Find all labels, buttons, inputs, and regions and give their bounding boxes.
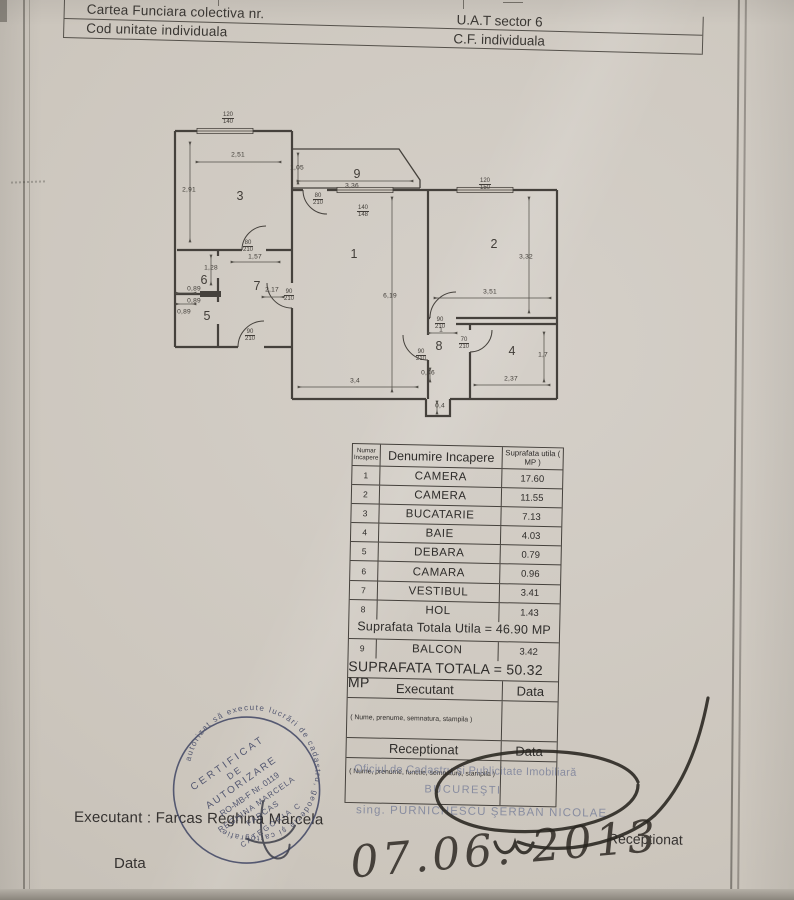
opening-size-label: 140148 (357, 205, 369, 218)
dimension-label: 1,57 (248, 254, 262, 261)
table-cell: 1.43 (499, 603, 559, 623)
table-cell: 7 (350, 581, 378, 600)
table-body: 1CAMERA17.602CAMERA11.553BUCATARIE7.134B… (349, 466, 562, 623)
opening-height: 140 (222, 119, 234, 125)
room-number: 6 (201, 273, 208, 287)
opening-width: 90 (416, 349, 426, 356)
room-number: 5 (204, 309, 211, 323)
column-header: Numar Incapere (353, 444, 381, 466)
opening-height: 210 (435, 324, 445, 330)
opening-size-label: 90210 (284, 289, 294, 302)
table-cell: 17.60 (502, 469, 562, 488)
dimension-label: 0,89 (177, 309, 191, 316)
dimension-label: 2,17 (265, 287, 279, 294)
table-cell: CAMERA (380, 486, 502, 507)
table-cell: 4 (351, 523, 379, 542)
table-cell: DEBARA (379, 543, 501, 564)
scanned-document-page: Cartea Funciara colectiva nr. U.A.T sect… (0, 0, 794, 900)
table-cell: CAMERA (380, 467, 502, 488)
opening-width: 90 (284, 289, 294, 296)
stamp-center-text: CERTIFICAT DE AUTORIZARE RO-MB-F Nr. 011… (187, 733, 311, 855)
table-cell: 3.42 (498, 642, 558, 662)
table-cell: 1 (352, 466, 380, 485)
opening-width: 90 (245, 329, 255, 336)
column-header: Denumire Incapere (381, 445, 503, 469)
opening-height: 210 (416, 356, 426, 362)
table-cell: BALCON (376, 639, 498, 661)
table-cell: 0.96 (500, 565, 560, 584)
opening-height: 210 (313, 200, 323, 206)
opening-size-label: 80210 (243, 240, 253, 253)
room-number: 8 (436, 339, 443, 353)
opening-height: 210 (284, 296, 294, 302)
opening-height: 210 (245, 336, 255, 342)
table-cell: 7.13 (501, 507, 561, 526)
opening-size-label: 70210 (459, 337, 469, 350)
table-cell: BAIE (379, 524, 501, 545)
opening-width: 120 (479, 178, 491, 185)
dimension-label: 6,19 (383, 293, 397, 300)
table-cell: 3.41 (500, 584, 560, 603)
table-cell: BUCATARIE (379, 505, 501, 526)
table-cell: HOL (377, 600, 499, 622)
opening-size-label: 90210 (435, 317, 445, 330)
table-cell: 3 (351, 504, 379, 523)
table-cell: 4.03 (501, 526, 561, 545)
opening-height: 148 (357, 212, 369, 218)
room-number: 7 (254, 279, 261, 293)
round-certification-stamp: autorizat să execute lucrări de cadastru… (140, 686, 355, 900)
opening-size-label: 120140 (222, 112, 234, 125)
opening-width: 80 (243, 240, 253, 247)
table-cell: CAMARA (378, 562, 500, 583)
table-cell: 8 (349, 600, 377, 620)
opening-height: 210 (243, 247, 253, 253)
opening-size-label: 80210 (313, 193, 323, 206)
table-cell: 2 (352, 485, 380, 504)
table-cell: 0.79 (501, 546, 561, 565)
table-cell: 5 (351, 542, 379, 561)
dimension-label: 3,51 (483, 289, 497, 296)
opening-size-label: 90210 (245, 329, 255, 342)
room-number: 2 (491, 237, 498, 251)
dimension-label: 0,4 (435, 403, 445, 410)
room-number: 1 (351, 247, 358, 261)
dimension-label: 3,4 (350, 378, 360, 385)
signature-scribble (398, 688, 738, 893)
room-number: 4 (509, 344, 516, 358)
column-header: Suprafata utila ( MP ) (503, 447, 563, 469)
opening-width: 120 (222, 112, 234, 119)
data-footer-label: Data (114, 855, 146, 872)
opening-width: 70 (459, 337, 469, 344)
room-number: 3 (237, 189, 244, 203)
opening-size-label: 120150 (479, 178, 491, 191)
room-number: 9 (354, 167, 361, 181)
dimension-label: 1,7 (538, 352, 548, 359)
opening-height: 210 (459, 344, 469, 350)
table-cell: 9 (349, 639, 377, 659)
table-cell: 11.55 (502, 488, 562, 507)
dimension-label: 3,36 (345, 183, 359, 190)
table-cell: 6 (350, 561, 378, 580)
dimension-label: 2,37 (504, 376, 518, 383)
floorplan-labels: 3912467582,512,911,053,366,193,43,513,32… (0, 0, 794, 460)
dimension-label: 1,05 (290, 165, 304, 172)
opening-height: 150 (479, 185, 491, 191)
opening-width: 140 (357, 205, 369, 212)
table-cell: VESTIBUL (378, 581, 500, 602)
opening-size-label: 90210 (416, 349, 426, 362)
dimension-label: 3,32 (519, 254, 533, 261)
dimension-label: 2,91 (182, 187, 196, 194)
dimension-label: 0,89 (187, 286, 201, 293)
dimension-label: 0,46 (421, 370, 435, 377)
opening-width: 90 (435, 317, 445, 324)
dimension-label: 1,28 (204, 265, 218, 272)
opening-width: 80 (313, 193, 323, 200)
dimension-label: 0,89 (187, 298, 201, 305)
dimension-label: 2,51 (231, 152, 245, 159)
